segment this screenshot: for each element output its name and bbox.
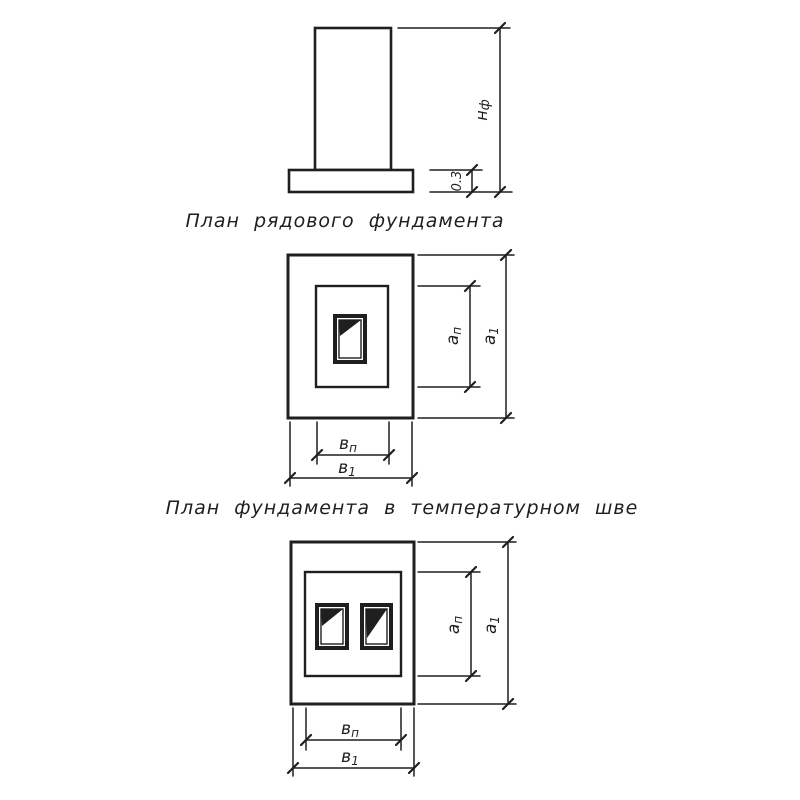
dim-label-b-pedestal: вп xyxy=(341,719,359,740)
plan-regular-title: План рядового фундамента xyxy=(185,210,504,232)
foundation-elevation-view: нф 0.3 xyxy=(289,23,512,197)
dim-label-a-pedestal: ап xyxy=(444,616,465,634)
dim-label-a-pedestal: ап xyxy=(443,327,464,345)
footing-outline xyxy=(291,542,414,704)
plan-regular-vertical-dimensions: ап а1 xyxy=(418,250,514,423)
column-socket xyxy=(335,316,365,362)
dim-label-b-overall: в1 xyxy=(341,747,359,768)
dim-label-height: нф xyxy=(472,99,493,121)
plan-joint-horizontal-dimensions: вп в1 xyxy=(288,708,419,776)
dim-label-b-pedestal: вп xyxy=(339,434,357,455)
plan-regular-view: ап а1 вп в1 xyxy=(285,250,514,486)
plan-joint-view: ап а1 вп в1 xyxy=(288,537,516,776)
column-outline xyxy=(315,28,391,170)
dim-label-b-overall: в1 xyxy=(338,458,356,479)
base-slab-outline xyxy=(289,170,413,192)
foundation-drawing: нф 0.3 План рядового фундамента xyxy=(0,0,800,800)
dim-label-a-overall: а1 xyxy=(481,616,502,634)
dim-label-slab: 0.3 xyxy=(450,171,465,192)
dim-label-a-overall: а1 xyxy=(480,327,501,345)
technical-drawing-sheet: нф 0.3 План рядового фундамента xyxy=(0,0,800,800)
plan-joint-vertical-dimensions: ап а1 xyxy=(418,537,516,709)
plan-regular-horizontal-dimensions: вп в1 xyxy=(285,422,417,486)
column-socket-left xyxy=(317,605,347,648)
plan-joint-title: План фундамента в температурном шве xyxy=(166,497,639,519)
column-socket-right xyxy=(362,605,391,648)
